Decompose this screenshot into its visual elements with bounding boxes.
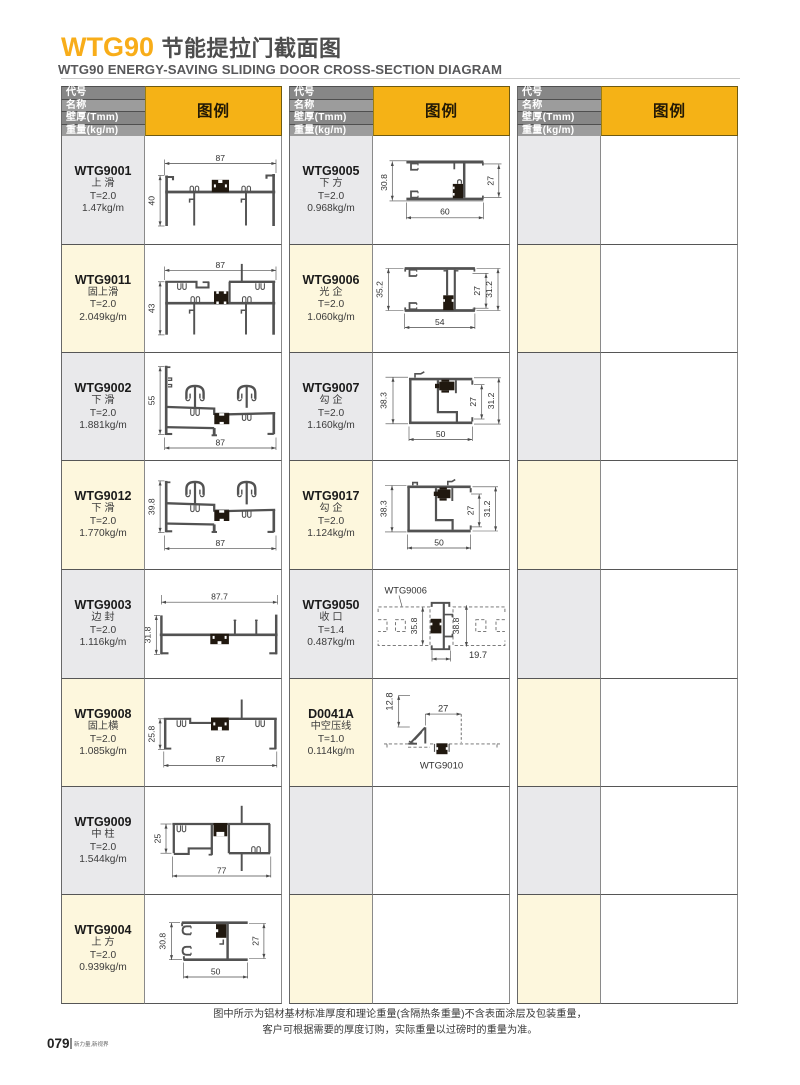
- svg-text:12.8: 12.8: [385, 692, 395, 710]
- svg-text:WTG9010: WTG9010: [420, 761, 463, 772]
- svg-text:87: 87: [216, 538, 226, 548]
- svg-text:35.2: 35.2: [375, 280, 385, 297]
- svg-text:19.7: 19.7: [469, 650, 487, 660]
- svg-text:WTG9006: WTG9006: [385, 586, 427, 596]
- svg-text:87: 87: [216, 437, 226, 447]
- svg-text:30.8: 30.8: [158, 933, 168, 950]
- svg-text:87: 87: [216, 153, 226, 163]
- svg-text:27: 27: [472, 285, 482, 295]
- svg-text:77: 77: [217, 865, 227, 875]
- svg-text:27: 27: [485, 176, 495, 186]
- svg-text:27: 27: [468, 397, 478, 407]
- svg-text:38.3: 38.3: [378, 392, 388, 409]
- svg-text:55: 55: [146, 396, 156, 406]
- svg-text:87: 87: [216, 754, 226, 764]
- svg-text:27: 27: [250, 936, 260, 946]
- svg-text:35.8: 35.8: [409, 617, 419, 634]
- svg-text:25: 25: [153, 834, 163, 844]
- svg-text:30.8: 30.8: [379, 174, 389, 191]
- svg-text:27: 27: [438, 703, 448, 713]
- svg-text:31.2: 31.2: [482, 500, 492, 517]
- svg-text:39.8: 39.8: [146, 498, 156, 515]
- svg-text:60: 60: [440, 206, 450, 216]
- svg-text:25.8: 25.8: [146, 726, 156, 743]
- svg-text:27: 27: [466, 506, 476, 516]
- svg-text:87.7: 87.7: [211, 592, 228, 602]
- svg-text:43: 43: [146, 303, 156, 313]
- svg-text:38.8: 38.8: [451, 617, 461, 634]
- svg-text:31.8: 31.8: [145, 626, 153, 643]
- svg-text:40: 40: [146, 196, 156, 206]
- svg-text:38.3: 38.3: [379, 500, 389, 517]
- svg-text:50: 50: [211, 966, 221, 976]
- svg-text:54: 54: [435, 316, 445, 326]
- svg-text:87: 87: [216, 259, 226, 269]
- svg-text:50: 50: [436, 429, 446, 439]
- svg-text:50: 50: [434, 537, 444, 547]
- svg-text:31.2: 31.2: [486, 392, 496, 409]
- svg-text:31.2: 31.2: [484, 280, 494, 297]
